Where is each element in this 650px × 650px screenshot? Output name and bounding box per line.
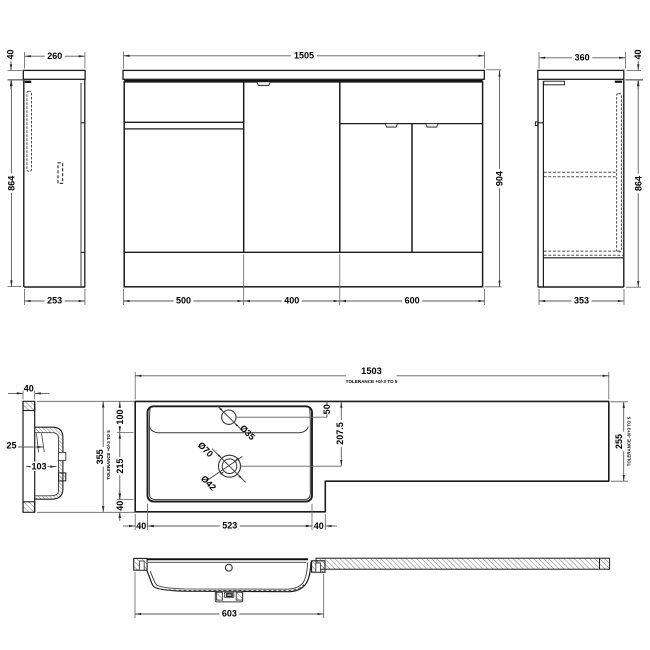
svg-text:100: 100 (115, 410, 125, 425)
svg-text:500: 500 (176, 296, 191, 306)
svg-text:215: 215 (115, 459, 125, 474)
svg-text:1505: 1505 (294, 50, 314, 60)
svg-text:864: 864 (7, 176, 17, 191)
svg-text:40: 40 (6, 49, 16, 59)
svg-text:50: 50 (322, 404, 332, 414)
svg-text:904: 904 (495, 171, 505, 186)
svg-text:400: 400 (284, 296, 299, 306)
svg-text:TOLERANCE -0/+3 TO 5: TOLERANCE -0/+3 TO 5 (627, 416, 632, 466)
svg-text:207.5: 207.5 (335, 422, 345, 445)
svg-text:40: 40 (24, 383, 34, 393)
svg-text:360: 360 (575, 52, 590, 62)
svg-text:25: 25 (6, 441, 16, 451)
svg-text:864: 864 (633, 176, 643, 191)
svg-text:1503: 1503 (361, 366, 382, 376)
svg-text:523: 523 (222, 521, 237, 531)
svg-text:40: 40 (115, 501, 125, 511)
svg-text:260: 260 (47, 51, 62, 61)
svg-text:TOLERANCE +0/-3 TO 5: TOLERANCE +0/-3 TO 5 (106, 430, 111, 480)
svg-text:355: 355 (95, 449, 105, 464)
svg-text:TOLERANCE +0/-3 TO 5: TOLERANCE +0/-3 TO 5 (346, 379, 398, 384)
svg-text:353: 353 (574, 296, 589, 306)
svg-text:603: 603 (222, 609, 237, 619)
svg-text:103: 103 (31, 461, 46, 471)
svg-text:600: 600 (405, 296, 420, 306)
svg-text:40: 40 (314, 521, 324, 531)
svg-text:253: 253 (47, 296, 62, 306)
svg-text:255: 255 (614, 434, 624, 449)
svg-text:40: 40 (136, 521, 146, 531)
svg-text:40: 40 (633, 49, 643, 59)
